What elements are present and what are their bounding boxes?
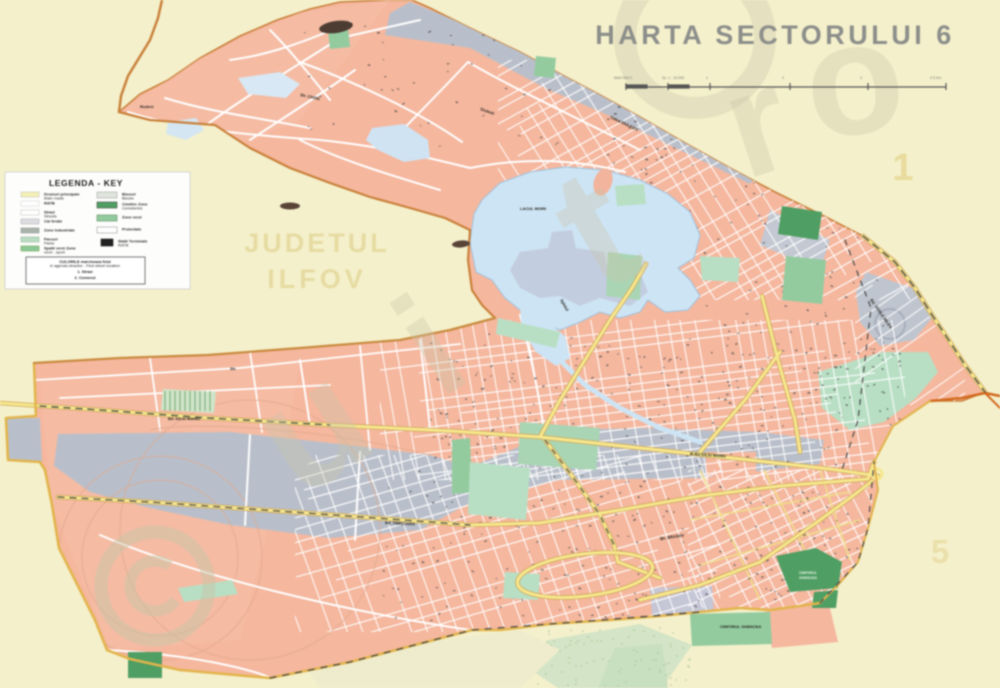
svg-text:Metri 500 0: Metri 500 0 — [614, 76, 632, 80]
svg-text:Zone verzi: Zone verzi — [122, 215, 142, 220]
svg-text:LEGENDA - KEY: LEGENDA - KEY — [49, 178, 123, 188]
svg-text:CIMITIRUL: CIMITIRUL — [799, 571, 818, 575]
svg-text:4 5 Km: 4 5 Km — [930, 76, 941, 80]
svg-text:Cemeteries: Cemeteries — [122, 206, 142, 211]
svg-text:Rudeni: Rudeni — [140, 104, 154, 109]
svg-text:Cai ferate: Cai ferate — [44, 219, 63, 224]
svg-text:HARTA SECTORULUI 6: HARTA SECTORULUI 6 — [595, 20, 955, 50]
svg-text:2: 2 — [782, 76, 784, 80]
svg-text:2. Comenzi: 2. Comenzi — [74, 275, 95, 280]
svg-text:Proiectate: Proiectate — [122, 227, 142, 232]
svg-text:LACUL MORII: LACUL MORII — [520, 206, 546, 211]
svg-text:1: 1 — [706, 76, 708, 80]
svg-text:in agenda strazilor - Find str: in agenda strazilor - Find street locati… — [50, 263, 120, 268]
svg-text:CIMITIRUL GHENCEA: CIMITIRUL GHENCEA — [720, 624, 761, 629]
svg-text:Blocks: Blocks — [122, 196, 134, 201]
svg-text:1. Strazi: 1. Strazi — [77, 269, 92, 274]
svg-text:5: 5 — [931, 533, 949, 570]
svg-text:Zone industriale: Zone industriale — [44, 228, 76, 233]
svg-text:ILFOV: ILFOV — [267, 264, 367, 294]
svg-text:JUDETUL: JUDETUL — [244, 228, 390, 258]
svg-text:GHENCEA: GHENCEA — [799, 576, 817, 580]
svg-text:RATB: RATB — [118, 243, 129, 248]
svg-text:RATB: RATB — [44, 201, 55, 206]
svg-text:3: 3 — [860, 76, 862, 80]
svg-text:verzi - sport: verzi - sport — [44, 250, 66, 255]
svg-text:Bd. IULIU MANIU: Bd. IULIU MANIU — [168, 416, 200, 421]
svg-text:Sc. 1 : 15.000: Sc. 1 : 15.000 — [662, 76, 684, 80]
